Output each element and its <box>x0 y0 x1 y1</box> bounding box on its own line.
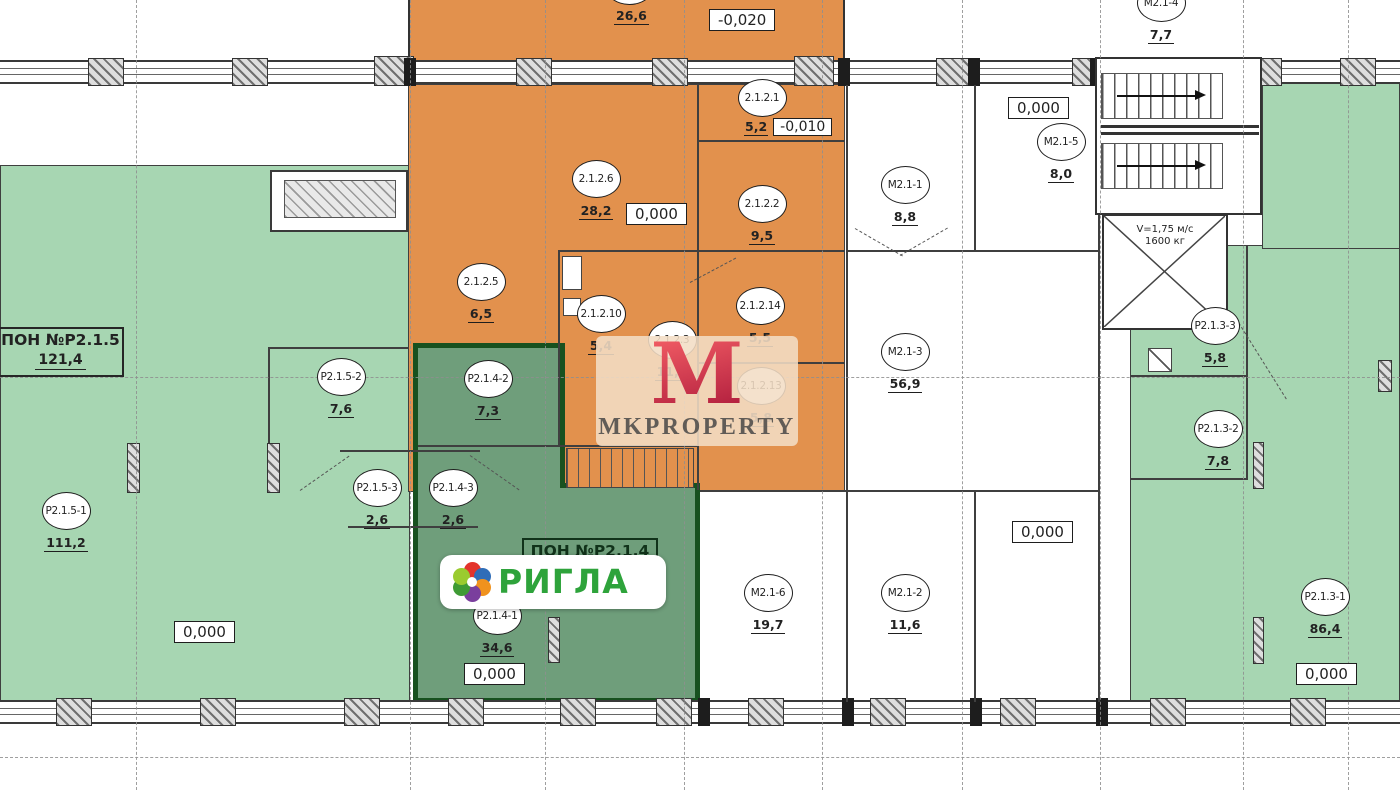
column-pier <box>548 617 560 663</box>
room-label-p2151: Р2.1.5-1 111,2 <box>34 492 98 552</box>
balcony-hatch <box>284 180 396 218</box>
room-code: Р2.1.3-2 <box>1194 410 1243 448</box>
room-code: 2.1.2.5 <box>457 263 506 301</box>
wall <box>268 347 270 443</box>
room-label-p2152: Р2.1.5-2 7,6 <box>309 358 373 418</box>
room-code: М2.1-3 <box>881 333 930 371</box>
level-mark-minus10: -0,010 <box>773 118 832 136</box>
wall <box>697 85 699 250</box>
door-swing <box>855 228 903 256</box>
balcony-strip <box>270 170 408 232</box>
room-area-26-6: 26,6 <box>614 8 649 25</box>
wall <box>700 490 1100 492</box>
room-area: 8,0 <box>1048 166 1074 183</box>
grid-axis <box>1243 0 1244 790</box>
room-label-m211: М2.1-1 8,8 <box>873 166 937 226</box>
wall-pier <box>516 58 552 86</box>
room-label-p2131: Р2.1.3-1 86,4 <box>1293 578 1357 638</box>
room-area: 6,5 <box>468 306 494 323</box>
column-pier <box>267 443 280 493</box>
wall-pier <box>56 698 92 726</box>
wall <box>974 85 976 250</box>
watermark-m-letter: М <box>596 328 798 420</box>
room-label-p2142: Р2.1.4-2 7,3 <box>456 360 520 420</box>
stair-arrow <box>1195 90 1206 100</box>
wall <box>558 250 560 445</box>
room-area: 34,6 <box>480 640 515 657</box>
elevator-speed: V=1,75 м/с <box>1104 224 1226 236</box>
grid-axis <box>410 0 411 790</box>
room-area: 19,7 <box>751 617 786 634</box>
level-mark-zero-left: 0,000 <box>174 621 235 643</box>
wall-pier <box>232 58 268 86</box>
room-label-r2126: 2.1.2.6 28,2 <box>564 160 628 220</box>
wall-block <box>838 58 850 86</box>
room-label-r2125: 2.1.2.5 6,5 <box>449 263 513 323</box>
grid-axis <box>0 757 1400 758</box>
room-label-p2133: Р2.1.3-3 5,8 <box>1183 307 1247 367</box>
room-code: Р2.1.3-1 <box>1301 578 1350 616</box>
column-pier <box>1253 442 1264 489</box>
bathroom-fixture <box>562 256 582 290</box>
room-label-m212: М2.1-2 11,6 <box>873 574 937 634</box>
room-code: 2.1.2.2 <box>738 185 787 223</box>
room-code: М2.1-4 <box>1137 0 1186 22</box>
wall-pier <box>870 698 906 726</box>
column-pier <box>1253 617 1264 664</box>
flower-center <box>467 577 477 587</box>
stairwell <box>1095 57 1262 215</box>
room-area: 7,7 <box>1148 27 1174 44</box>
wall-pier <box>560 698 596 726</box>
wall-pier <box>1340 58 1376 86</box>
wall-pier <box>344 698 380 726</box>
wall-block <box>968 58 980 86</box>
room-code: Р2.1.4-3 <box>429 469 478 507</box>
room-area: 9,5 <box>749 228 775 245</box>
room-code: Р2.1.5-1 <box>42 492 91 530</box>
wall <box>846 250 1100 252</box>
room-code: 2.1.2.6 <box>572 160 621 198</box>
room-area: 2,6 <box>364 512 390 529</box>
room-area: 111,2 <box>44 535 88 552</box>
shaft-hatch <box>1148 348 1172 372</box>
wall-pier <box>794 56 834 86</box>
room-area: 86,4 <box>1308 621 1343 638</box>
rigla-flower-icon <box>452 562 492 602</box>
room-r2121-area-row: 5,2 -0,010 <box>744 118 832 136</box>
wall <box>418 445 560 447</box>
tenant-logo-rigla: РИГЛА <box>440 555 666 609</box>
room-label-p2153: Р2.1.5-3 2,6 <box>345 469 409 529</box>
internal-stair <box>566 448 694 488</box>
room-code: М2.1-5 <box>1037 123 1086 161</box>
room-label-r2122: 2.1.2.2 9,5 <box>730 185 794 245</box>
wall <box>1130 478 1248 480</box>
room-area: 2,6 <box>440 512 466 529</box>
column-pier <box>1378 360 1392 392</box>
room-label-p2132: Р2.1.3-2 7,8 <box>1186 410 1250 470</box>
watermark-panel: М MKPROPERTY <box>596 336 798 446</box>
unit-title-p215-name: ПОН №Р2.1.5 <box>0 329 122 349</box>
wall-block <box>970 698 982 726</box>
room-area: 7,6 <box>328 401 354 418</box>
column-pier <box>127 443 140 493</box>
wall-block <box>1096 698 1108 726</box>
room-label-p2143: Р2.1.4-3 2,6 <box>421 469 485 529</box>
room-area: 28,2 <box>579 203 614 220</box>
level-mark-minus20: -0,020 <box>709 9 775 31</box>
room-area: 5,8 <box>1202 350 1228 367</box>
elevator-spec: V=1,75 м/с 1600 кг <box>1104 224 1226 248</box>
level-mark-zero-corridor: 0,000 <box>1012 521 1073 543</box>
wall-block <box>842 698 854 726</box>
stair-rail <box>1101 132 1259 135</box>
grid-axis <box>1100 0 1101 790</box>
room-label-r2121: 2.1.2.1 <box>730 79 794 117</box>
level-mark-zero-unit: 0,000 <box>464 663 525 685</box>
wall-block <box>698 698 710 726</box>
room-code: Р2.1.5-3 <box>353 469 402 507</box>
wall-pier <box>1000 698 1036 726</box>
room-area: 5,2 <box>744 119 768 136</box>
wall <box>846 85 848 702</box>
wall-pier <box>748 698 784 726</box>
wall-pier <box>1150 698 1186 726</box>
room-area: 56,9 <box>888 376 923 393</box>
room-code: М2.1-1 <box>881 166 930 204</box>
rigla-logo-text: РИГЛА <box>498 562 629 601</box>
wall-pier <box>200 698 236 726</box>
room-area: 7,3 <box>475 403 501 420</box>
room-code: Р2.1.5-2 <box>317 358 366 396</box>
grid-axis <box>136 0 137 790</box>
wall <box>974 490 976 702</box>
room-label-m216: М2.1-6 19,7 <box>736 574 800 634</box>
level-mark-zero-orange: 0,000 <box>626 203 687 225</box>
room-area: 7,8 <box>1205 453 1231 470</box>
wall <box>560 250 845 252</box>
room-code: М2.1-6 <box>744 574 793 612</box>
stair-arrow <box>1195 160 1206 170</box>
floor-plan: V=1,75 м/с 1600 кг ПОН №Р2.1.5 121,4 ПОН… <box>0 0 1400 790</box>
room-label-m214-cut: М2.1-4 7,7 <box>1129 0 1193 44</box>
region-right-green-column <box>1262 83 1400 249</box>
level-mark-zero-right: 0,000 <box>1296 663 1357 685</box>
wall-pier <box>1290 698 1326 726</box>
level-mark-zero-stair: 0,000 <box>1008 97 1069 119</box>
room-code: Р2.1.4-2 <box>464 360 513 398</box>
wall <box>270 347 408 349</box>
stair-rail <box>1101 125 1259 128</box>
grid-axis <box>962 0 963 790</box>
wall-pier <box>448 698 484 726</box>
grid-axis <box>545 0 546 790</box>
watermark-brand-text: MKPROPERTY <box>596 414 798 441</box>
wall-pier <box>652 58 688 86</box>
wall-pier <box>88 58 124 86</box>
wall-pier <box>656 698 692 726</box>
room-code: 2.1.2.14 <box>736 287 785 325</box>
unit-title-p215: ПОН №Р2.1.5 121,4 <box>0 327 124 377</box>
room-code <box>605 0 654 5</box>
room-area: 8,8 <box>892 209 918 226</box>
stair-arrow-line <box>1117 95 1197 97</box>
room-area: 11,6 <box>888 617 923 634</box>
room-code: Р2.1.3-3 <box>1191 307 1240 345</box>
room-code: М2.1-2 <box>881 574 930 612</box>
elevator-capacity: 1600 кг <box>1104 236 1226 248</box>
unit-title-p215-area: 121,4 <box>35 352 85 370</box>
stair-arrow-line <box>1117 165 1197 167</box>
room-label-m213: М2.1-3 56,9 <box>873 333 937 393</box>
room-label-top-cut <box>597 0 661 5</box>
room-label-m215: М2.1-5 8,0 <box>1029 123 1093 183</box>
room-code: 2.1.2.1 <box>738 79 787 117</box>
